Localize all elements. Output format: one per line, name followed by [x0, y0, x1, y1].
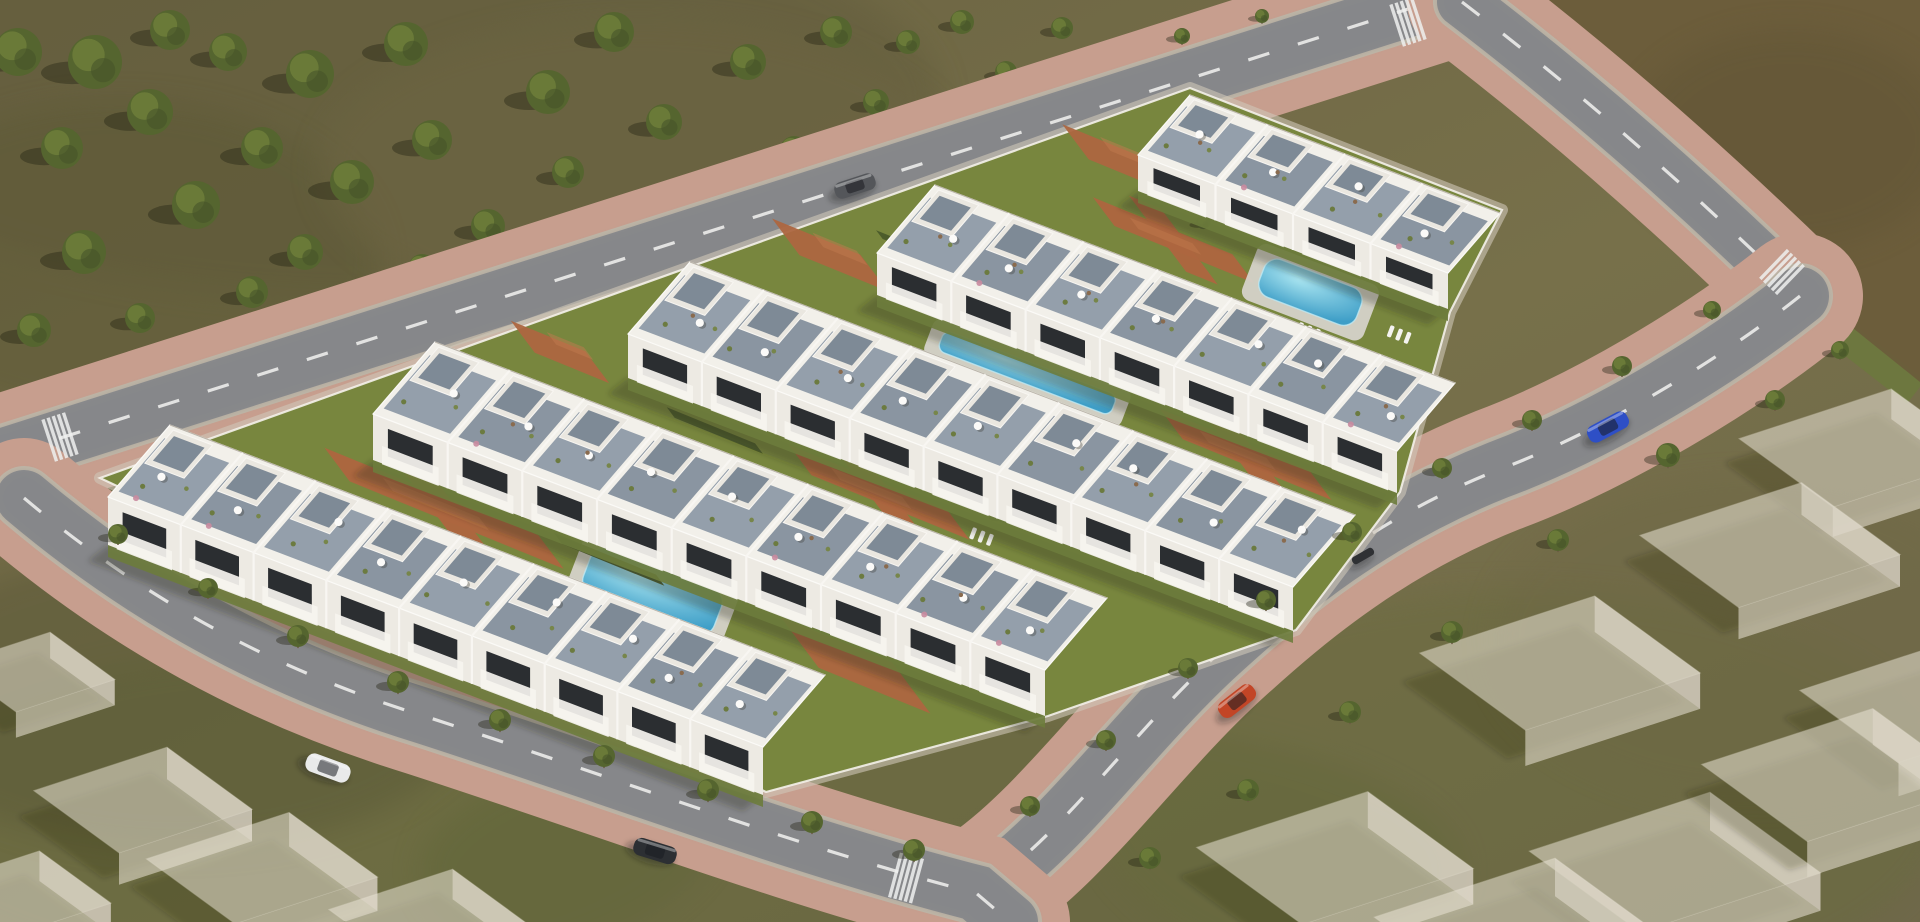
patio-umbrella	[1152, 315, 1160, 323]
terrace-plant	[882, 405, 887, 410]
flowering-shrub	[1348, 421, 1354, 427]
patio-umbrella	[1254, 340, 1262, 348]
terrace-plant	[1130, 325, 1135, 330]
terrace-plant	[1063, 300, 1068, 305]
patio-umbrella	[899, 397, 907, 405]
terrace-plant	[363, 569, 368, 574]
render-viewport	[0, 0, 1920, 922]
patio-umbrella	[1072, 439, 1080, 447]
patio-umbrella	[377, 558, 385, 566]
patio-umbrella	[450, 389, 458, 397]
terrace-plant	[903, 239, 908, 244]
patio-umbrella	[866, 563, 874, 571]
patio-umbrella	[1298, 526, 1306, 534]
terrace-plant	[401, 399, 406, 404]
terrace-table	[585, 451, 589, 455]
terrace-plant	[1164, 143, 1169, 148]
flowering-shrub	[473, 441, 479, 447]
terrace-table	[1384, 404, 1388, 408]
terrace-plant	[1099, 488, 1104, 493]
patio-umbrella	[1077, 291, 1085, 299]
patio-umbrella	[647, 468, 655, 476]
terrace-plant	[663, 322, 668, 327]
patio-umbrella	[844, 374, 852, 382]
patio-umbrella	[157, 473, 165, 481]
terrace-table	[680, 671, 684, 675]
patio-umbrella	[460, 579, 468, 587]
terrace-plant	[480, 429, 485, 434]
patio-umbrella	[728, 493, 736, 501]
terrace-table	[838, 370, 842, 374]
terrace-plant	[1178, 518, 1183, 523]
patio-umbrella	[696, 319, 704, 327]
terrace-table	[511, 422, 515, 426]
terrace-plant	[773, 541, 778, 546]
patio-umbrella	[1355, 182, 1363, 190]
terrace-plant	[570, 648, 575, 653]
terrace-plant	[814, 379, 819, 384]
patio-umbrella	[629, 635, 637, 643]
patio-umbrella	[234, 506, 242, 514]
terrace-table	[1161, 319, 1165, 323]
terrace-plant	[859, 574, 864, 579]
terrace-plant	[1251, 546, 1256, 551]
aerial-render-scene	[0, 0, 1920, 922]
terrace-plant	[1330, 206, 1335, 211]
terrace-plant	[727, 346, 732, 351]
patio-umbrella	[1005, 264, 1013, 272]
patio-umbrella	[1129, 464, 1137, 472]
terrace-plant	[629, 486, 634, 491]
terrace-plant	[650, 678, 655, 683]
terrace-plant	[210, 510, 215, 515]
terrace-table	[809, 536, 813, 540]
patio-umbrella	[334, 518, 342, 526]
terrace-plant	[1005, 629, 1010, 634]
terrace-plant	[1242, 173, 1247, 178]
terrace-plant	[1028, 461, 1033, 466]
patio-umbrella	[736, 700, 744, 708]
patio-umbrella	[665, 674, 673, 682]
terrace-plant	[1278, 382, 1283, 387]
terrace-plant	[723, 706, 728, 711]
terrace-table	[884, 564, 888, 568]
terrace-plant	[984, 270, 989, 275]
terrace-table	[691, 313, 695, 317]
flowering-shrub	[206, 523, 212, 529]
terrace-table	[1198, 141, 1202, 145]
flowering-shrub	[1396, 243, 1402, 249]
flowering-shrub	[772, 555, 778, 561]
terrace-plant	[710, 517, 715, 522]
terrace-plant	[424, 592, 429, 597]
patio-umbrella	[553, 598, 561, 606]
patio-umbrella	[1387, 412, 1395, 420]
terrace-plant	[920, 597, 925, 602]
flowering-shrub	[976, 280, 982, 286]
patio-umbrella	[524, 422, 532, 430]
flowering-shrub	[921, 611, 927, 617]
terrace-plant	[1200, 352, 1205, 357]
terrace-table	[1012, 263, 1016, 267]
terrace-table	[1134, 482, 1138, 486]
terrace-plant	[1407, 236, 1412, 241]
terrace-plant	[951, 431, 956, 436]
patio-umbrella	[974, 422, 982, 430]
patio-umbrella	[1026, 626, 1034, 634]
flowering-shrub	[996, 640, 1002, 646]
flowering-shrub	[1241, 184, 1247, 190]
terrace-plant	[1355, 411, 1360, 416]
terrace-table	[1087, 291, 1091, 295]
patio-umbrella	[794, 533, 802, 541]
terrace-plant	[555, 458, 560, 463]
terrace-table	[1282, 538, 1286, 542]
terrace-plant	[510, 625, 515, 630]
terrace-plant	[140, 484, 145, 489]
terrace-table	[938, 234, 942, 238]
patio-umbrella	[1195, 130, 1203, 138]
terrace-plant	[291, 541, 296, 546]
patio-umbrella	[761, 348, 769, 356]
patio-umbrella	[1314, 359, 1322, 367]
terrace-table	[959, 593, 963, 597]
flowering-shrub	[133, 495, 139, 501]
terrace-table	[1353, 200, 1357, 204]
patio-umbrella	[949, 235, 957, 243]
patio-umbrella	[1210, 518, 1218, 526]
terrace-table	[1275, 170, 1279, 174]
patio-umbrella	[1420, 229, 1428, 237]
